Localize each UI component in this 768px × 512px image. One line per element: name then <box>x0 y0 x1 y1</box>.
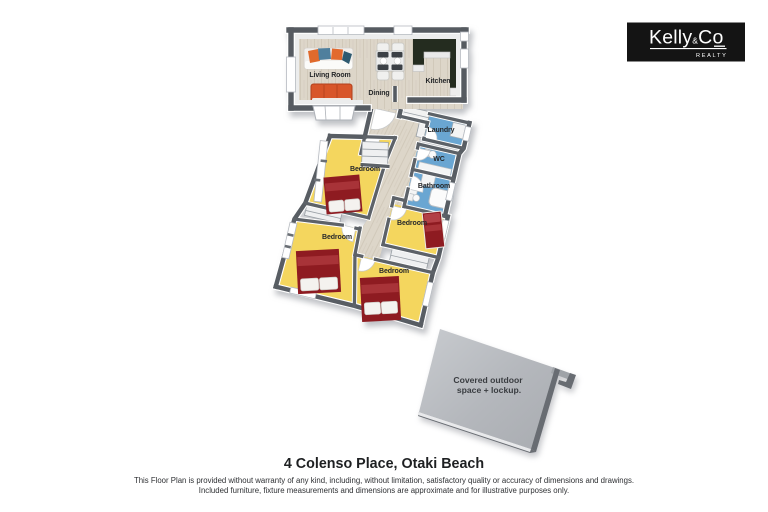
svg-text:Included furniture, fixture me: Included furniture, fixture measurements… <box>199 486 569 495</box>
svg-text:Laundry: Laundry <box>428 127 455 134</box>
svg-text:Dining: Dining <box>368 90 389 97</box>
svg-text:WC: WC <box>433 156 445 163</box>
svg-text:This Floor Plan is provided wi: This Floor Plan is provided without warr… <box>134 476 634 485</box>
svg-text:4 Colenso Place, Otaki Beach: 4 Colenso Place, Otaki Beach <box>284 456 484 472</box>
svg-text:Bathroom: Bathroom <box>418 183 450 190</box>
svg-text:Living Room: Living Room <box>309 72 350 79</box>
svg-text:Bedroom: Bedroom <box>379 268 409 275</box>
svg-text:Covered outdoor: Covered outdoor <box>453 375 523 385</box>
svg-text:Kitchen: Kitchen <box>426 78 451 85</box>
svg-text:REALTY: REALTY <box>696 53 728 59</box>
svg-text:Bedroom: Bedroom <box>350 166 380 173</box>
svg-text:space + lockup.: space + lockup. <box>457 385 521 395</box>
svg-text:Bedroom: Bedroom <box>322 234 352 241</box>
svg-text:Kelly&Co: Kelly&Co <box>649 27 723 49</box>
svg-text:Bedroom: Bedroom <box>397 220 427 227</box>
